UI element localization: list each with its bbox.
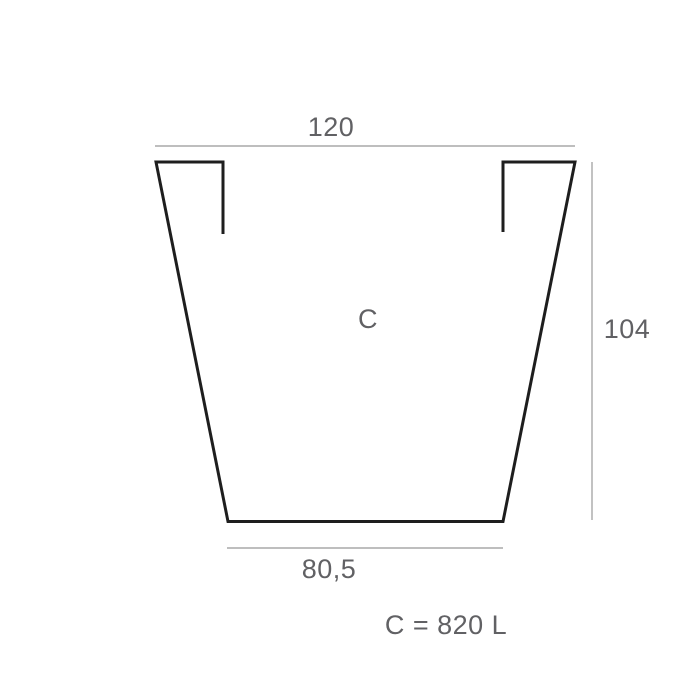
diagram-svg: 120 104 80,5 C C = 820 L xyxy=(0,0,700,700)
top-width-label: 120 xyxy=(308,112,355,142)
shape-label: C xyxy=(358,304,378,334)
height-label: 104 xyxy=(604,314,651,344)
bottom-width-label: 80,5 xyxy=(302,554,357,584)
planter-dimension-diagram: 120 104 80,5 C C = 820 L xyxy=(0,0,700,700)
capacity-label: C = 820 L xyxy=(385,610,507,640)
planter-cross-section-outline xyxy=(156,162,575,522)
